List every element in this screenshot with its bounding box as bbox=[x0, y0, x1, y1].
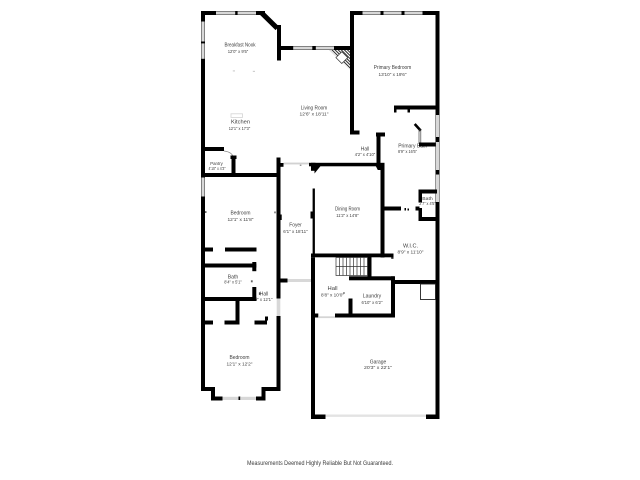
svg-text:Laundry: Laundry bbox=[363, 293, 382, 299]
svg-text:8'4" x 5'1": 8'4" x 5'1" bbox=[224, 279, 242, 284]
svg-text:20'3" x 22'1": 20'3" x 22'1" bbox=[364, 365, 392, 370]
svg-text:Measurements Deemed Highly Rel: Measurements Deemed Highly Reliable But … bbox=[247, 460, 393, 467]
svg-text:4'10" x 4'3": 4'10" x 4'3" bbox=[209, 166, 226, 171]
svg-text:6'10" x 6'2": 6'10" x 6'2" bbox=[362, 300, 383, 305]
svg-text:Bedroom: Bedroom bbox=[231, 210, 251, 216]
svg-text:Foyer: Foyer bbox=[289, 222, 302, 228]
svg-text:4'2" x 4'10": 4'2" x 4'10" bbox=[355, 152, 376, 157]
svg-text:8'9" x 11'10": 8'9" x 11'10" bbox=[398, 249, 424, 254]
svg-text:13'10" x 19'6": 13'10" x 19'6" bbox=[379, 72, 407, 77]
svg-text:Dining Room: Dining Room bbox=[335, 206, 360, 212]
svg-text:12'0" x 9'5": 12'0" x 9'5" bbox=[228, 49, 249, 54]
svg-text:Hall: Hall bbox=[328, 286, 338, 292]
svg-text:12'1" x 12'2": 12'1" x 12'2" bbox=[227, 361, 253, 366]
svg-text:6'1" x 18'11": 6'1" x 18'11" bbox=[283, 229, 308, 234]
svg-text:2'7" x 4'5": 2'7" x 4'5" bbox=[419, 201, 436, 206]
svg-text:Bedroom: Bedroom bbox=[230, 355, 250, 361]
svg-text:Primary Bedroom: Primary Bedroom bbox=[374, 65, 412, 71]
svg-text:Breakfast Nook: Breakfast Nook bbox=[225, 42, 256, 48]
svg-text:12'6" x 18'11": 12'6" x 18'11" bbox=[300, 111, 329, 116]
svg-text:8'8" x 10'0": 8'8" x 10'0" bbox=[321, 292, 344, 297]
svg-text:11'2" x 14'8": 11'2" x 14'8" bbox=[336, 213, 359, 218]
svg-text:8'9" x 16'5": 8'9" x 16'5" bbox=[398, 149, 417, 154]
svg-text:Kitchen: Kitchen bbox=[231, 119, 250, 125]
svg-text:12'1" x 17'3": 12'1" x 17'3" bbox=[229, 126, 251, 131]
svg-text:7' x 12'1": 7' x 12'1" bbox=[256, 297, 273, 302]
svg-text:12'1" x 11'8": 12'1" x 11'8" bbox=[228, 217, 254, 222]
